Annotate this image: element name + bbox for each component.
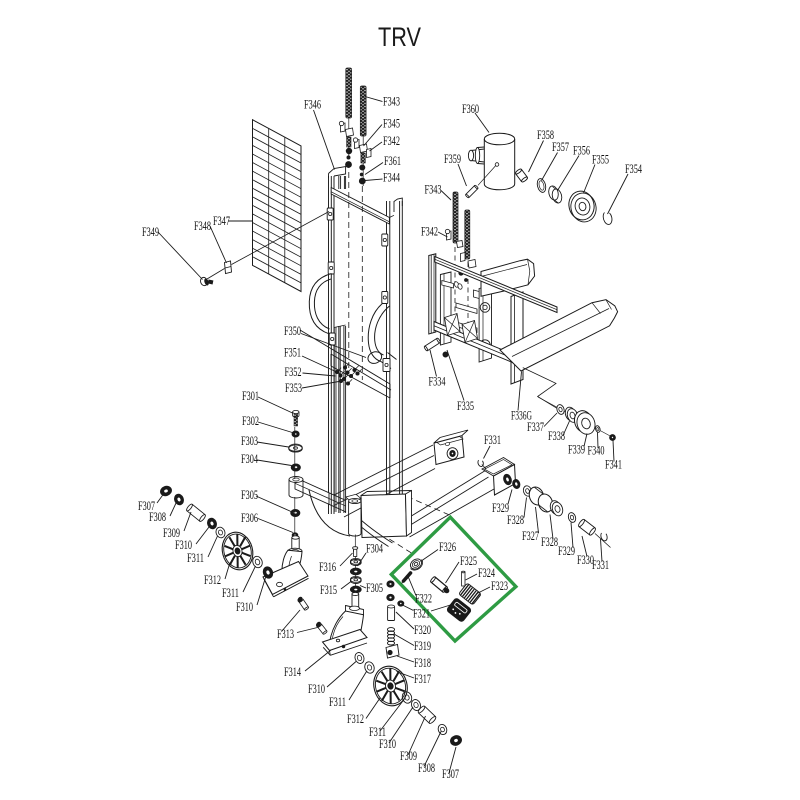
- svg-text:F355: F355: [592, 152, 609, 167]
- svg-text:F359: F359: [444, 151, 461, 166]
- svg-text:F353: F353: [285, 380, 302, 395]
- svg-text:F309: F309: [400, 748, 417, 763]
- svg-text:F327: F327: [522, 528, 539, 543]
- svg-text:F343: F343: [425, 182, 442, 197]
- svg-text:F342: F342: [421, 224, 438, 239]
- svg-text:F312: F312: [347, 711, 364, 726]
- svg-text:F349: F349: [142, 224, 159, 239]
- svg-text:F342: F342: [383, 133, 400, 148]
- svg-text:F304: F304: [241, 451, 258, 466]
- svg-text:F338: F338: [548, 428, 565, 443]
- svg-text:F323: F323: [491, 578, 508, 593]
- svg-text:F322: F322: [415, 591, 432, 606]
- svg-text:F340: F340: [588, 443, 605, 458]
- svg-text:F343: F343: [383, 94, 400, 109]
- svg-text:F303: F303: [241, 433, 258, 448]
- svg-text:F328: F328: [541, 534, 558, 549]
- svg-text:F337: F337: [527, 419, 544, 434]
- svg-text:F315: F315: [320, 582, 337, 597]
- svg-text:F350: F350: [284, 323, 301, 338]
- svg-text:F308: F308: [418, 760, 435, 775]
- svg-text:F357: F357: [552, 139, 569, 154]
- svg-text:F345: F345: [383, 116, 400, 131]
- svg-text:F329: F329: [558, 543, 575, 558]
- svg-text:F319: F319: [414, 638, 431, 653]
- svg-text:F302: F302: [242, 413, 259, 428]
- svg-text:F314: F314: [284, 664, 301, 679]
- svg-text:F310: F310: [379, 736, 396, 751]
- svg-text:F308: F308: [149, 509, 166, 524]
- svg-text:F331: F331: [592, 557, 609, 572]
- svg-text:F344: F344: [383, 170, 400, 185]
- svg-text:TRV: TRV: [378, 22, 421, 52]
- svg-text:F305: F305: [241, 487, 258, 502]
- svg-text:F310: F310: [236, 599, 253, 614]
- svg-text:F312: F312: [204, 572, 221, 587]
- svg-text:F301: F301: [242, 388, 259, 403]
- svg-text:F326: F326: [439, 539, 456, 554]
- svg-text:F304: F304: [366, 541, 383, 556]
- svg-text:F311: F311: [329, 694, 346, 709]
- svg-text:F320: F320: [414, 622, 431, 637]
- svg-text:F346: F346: [304, 97, 321, 112]
- svg-text:F305: F305: [366, 580, 383, 595]
- svg-text:F316: F316: [319, 559, 336, 574]
- svg-text:F356: F356: [573, 143, 590, 158]
- svg-text:F352: F352: [285, 364, 302, 379]
- svg-text:F313: F313: [277, 626, 294, 641]
- svg-text:F341: F341: [605, 457, 622, 472]
- svg-text:F347: F347: [213, 213, 230, 228]
- svg-text:F311: F311: [187, 550, 204, 565]
- svg-text:F351: F351: [284, 345, 301, 360]
- svg-text:F335: F335: [457, 398, 474, 413]
- svg-text:F331: F331: [484, 432, 501, 447]
- svg-text:F328: F328: [507, 512, 524, 527]
- svg-text:F325: F325: [460, 553, 477, 568]
- svg-text:F310: F310: [308, 681, 325, 696]
- svg-text:F348: F348: [194, 218, 211, 233]
- svg-text:F317: F317: [414, 671, 431, 686]
- svg-text:F339: F339: [568, 442, 585, 457]
- svg-text:F354: F354: [625, 161, 642, 176]
- svg-text:F321: F321: [413, 606, 430, 621]
- svg-text:F361: F361: [384, 153, 401, 168]
- svg-text:F360: F360: [462, 101, 479, 116]
- svg-text:F334: F334: [429, 374, 446, 389]
- svg-text:F318: F318: [414, 655, 431, 670]
- svg-text:F311: F311: [222, 585, 239, 600]
- svg-text:F307: F307: [442, 766, 459, 781]
- svg-text:F306: F306: [241, 510, 258, 525]
